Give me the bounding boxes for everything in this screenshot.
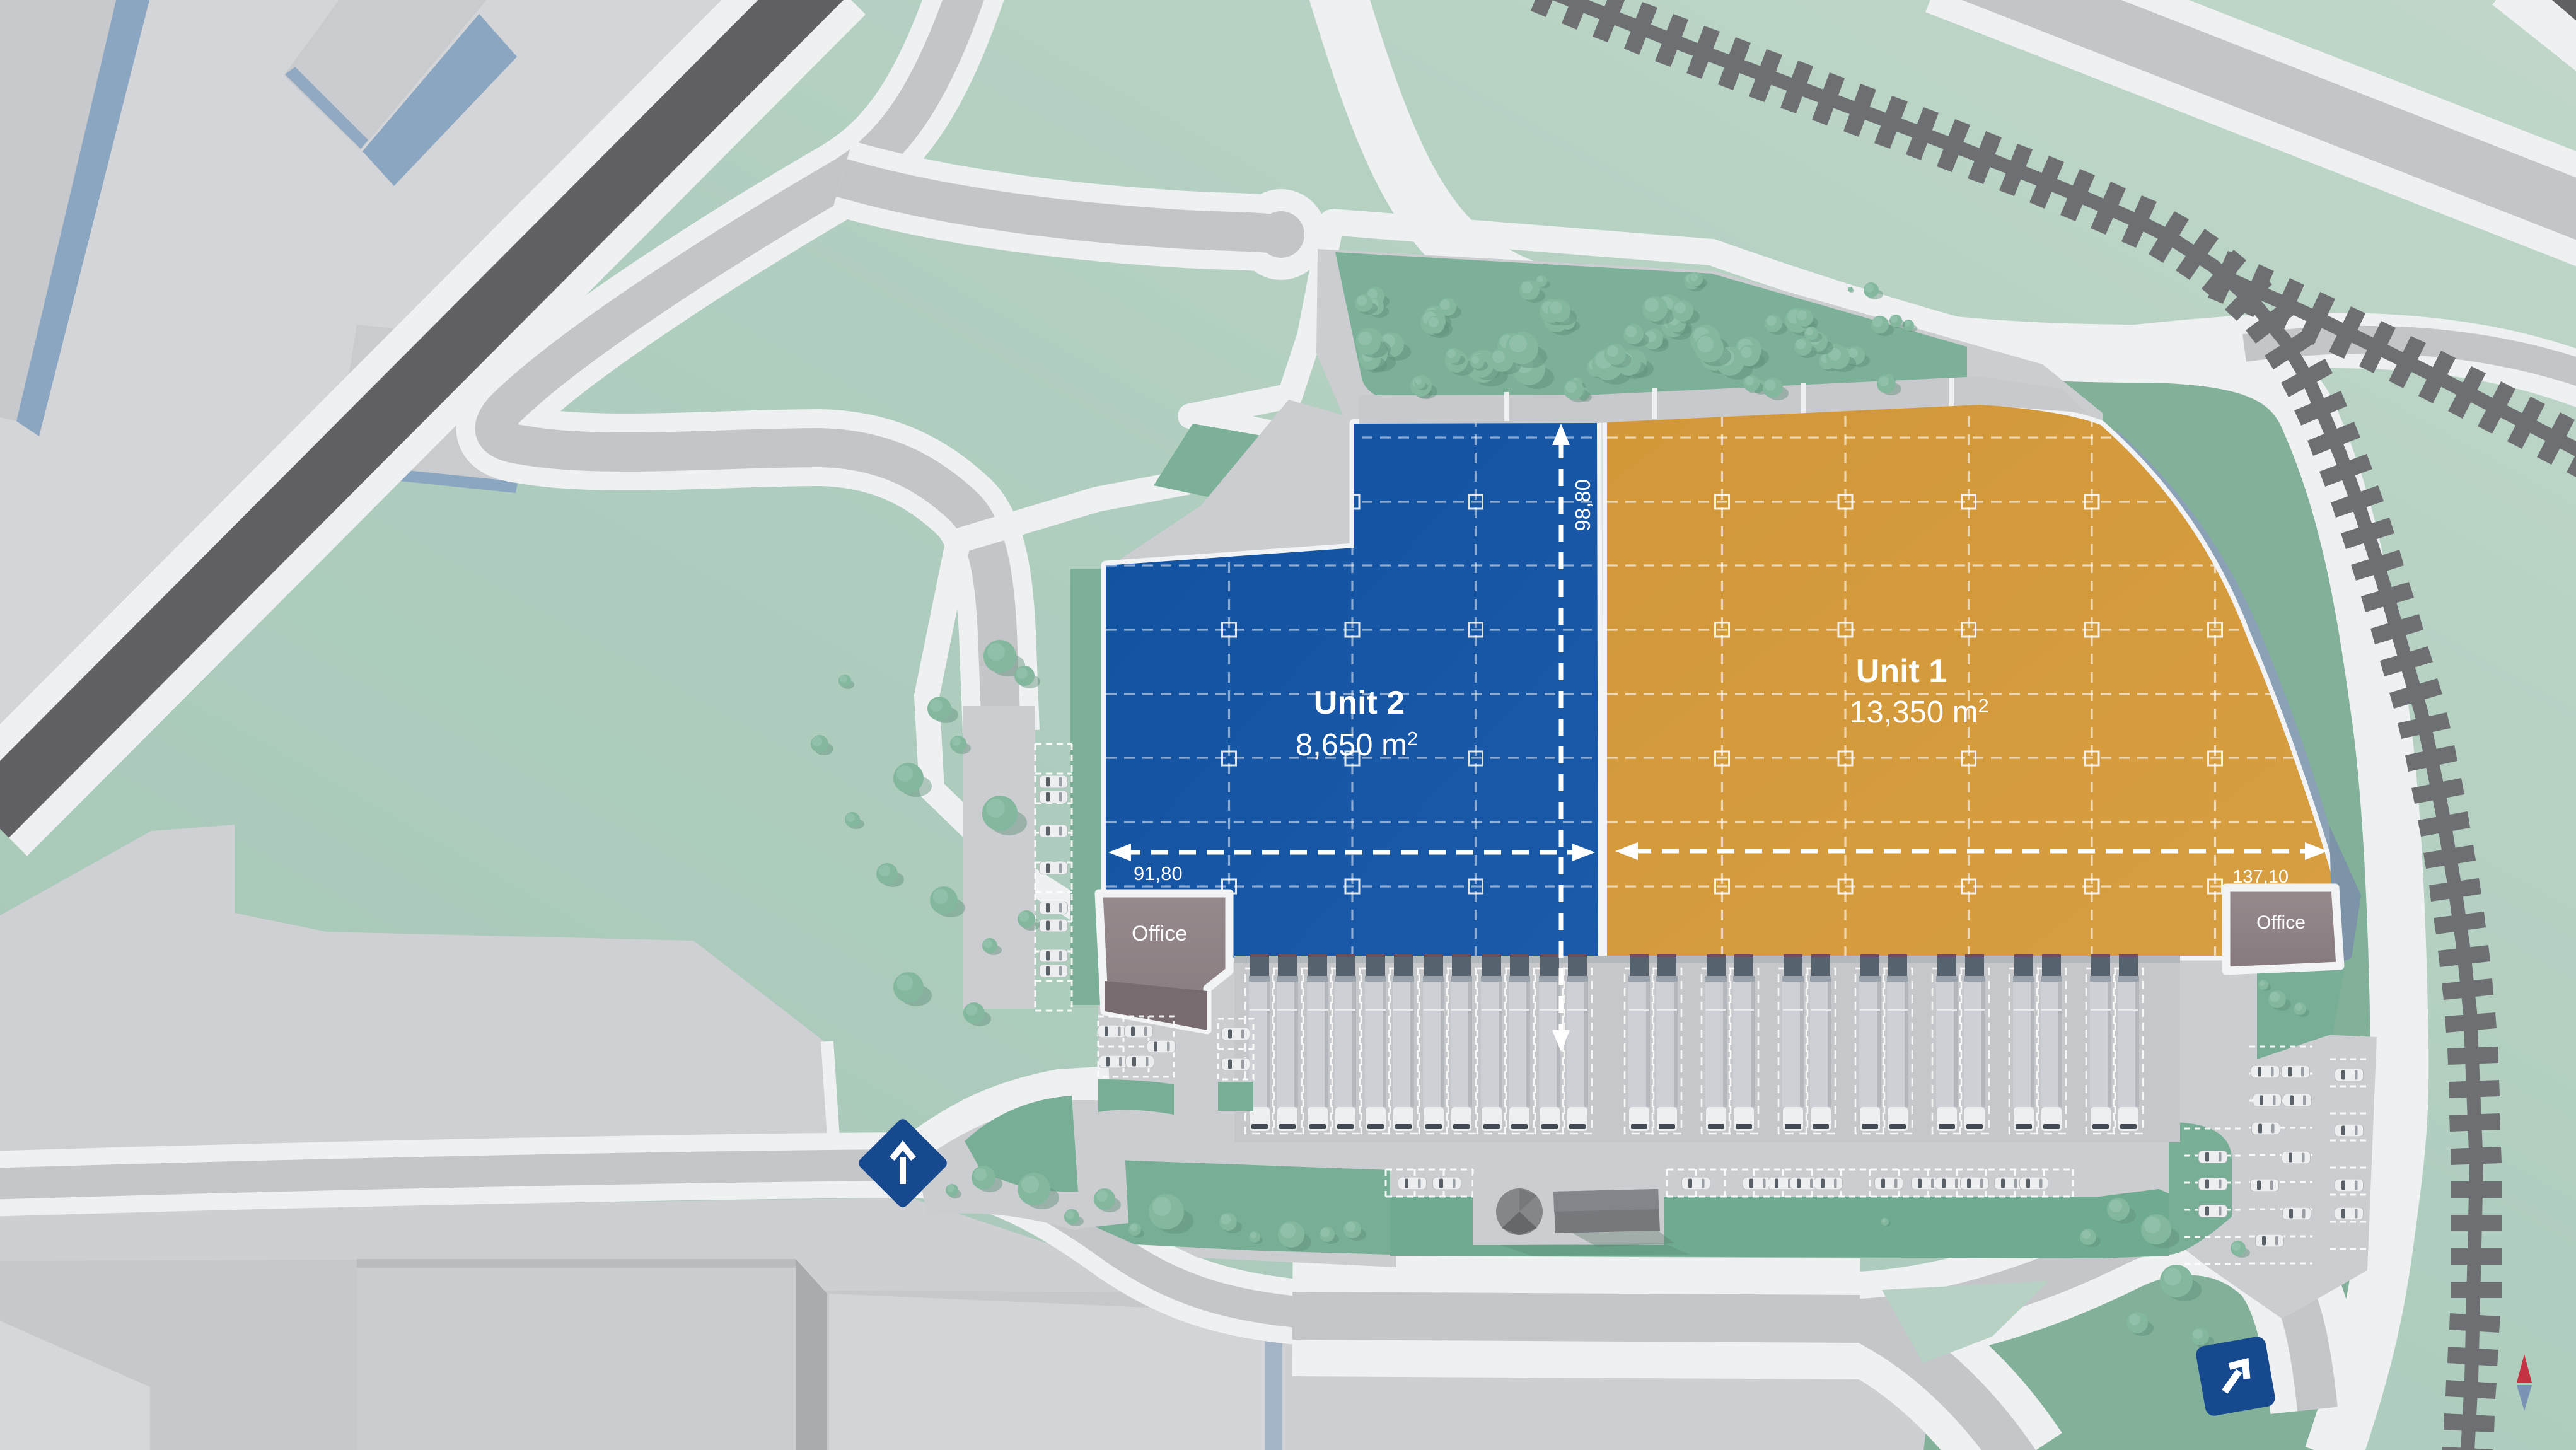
svg-text:8,650 m2: 8,650 m2 xyxy=(1296,728,1418,762)
svg-text:13,350 m2: 13,350 m2 xyxy=(1849,695,1989,729)
svg-text:98,80: 98,80 xyxy=(1571,479,1594,531)
svg-text:Office: Office xyxy=(1132,922,1187,946)
svg-text:Office: Office xyxy=(2256,912,2306,933)
svg-text:Unit 2: Unit 2 xyxy=(1314,685,1405,721)
svg-text:91,80: 91,80 xyxy=(1134,862,1183,884)
svg-text:137,10: 137,10 xyxy=(2232,867,2289,887)
svg-text:Unit 1: Unit 1 xyxy=(1856,653,1947,690)
